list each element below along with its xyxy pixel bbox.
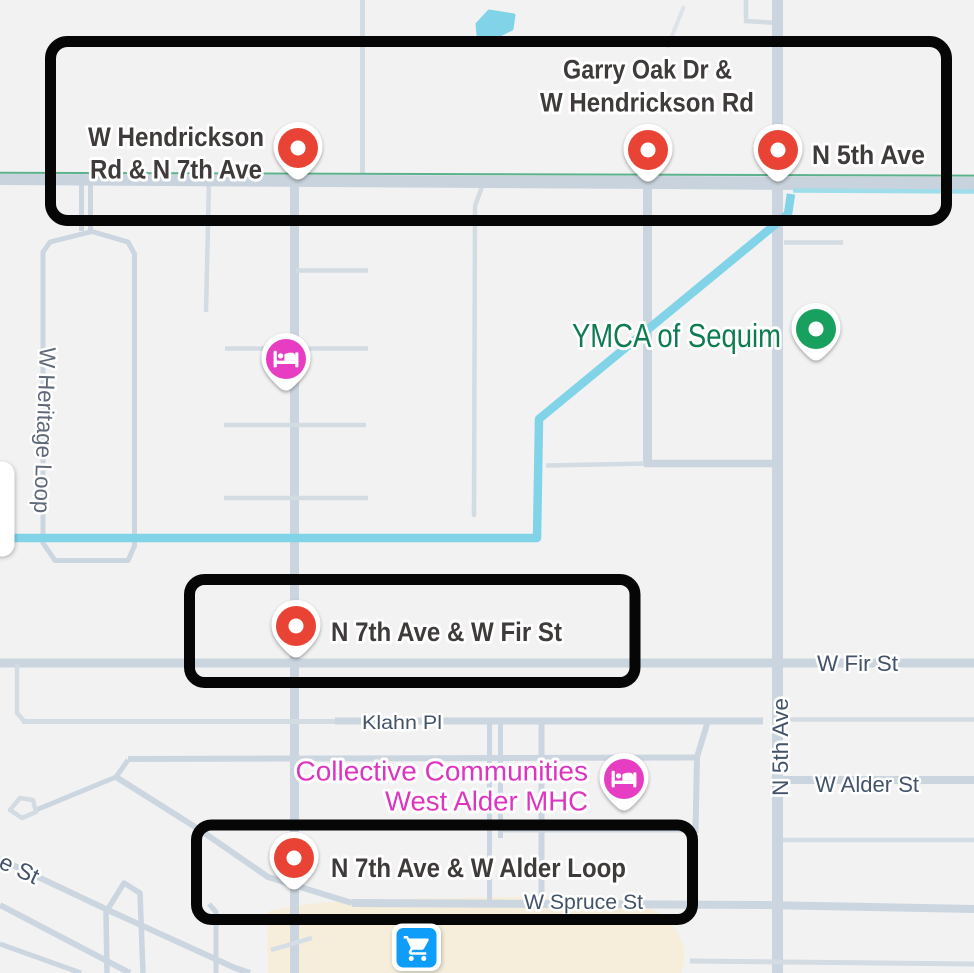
svg-text:West Alder MHC: West Alder MHC [385,786,588,817]
svg-text:W Fir St: W Fir St [817,651,898,676]
svg-text:W Alder St: W Alder St [815,772,919,797]
svg-text:W Hendrickson: W Hendrickson [88,122,264,152]
svg-text:W Hendrickson Rd: W Hendrickson Rd [540,88,754,118]
svg-text:Klahn Pl: Klahn Pl [362,712,442,734]
svg-text:N 5th Ave: N 5th Ave [768,698,793,796]
svg-text:YMCA of Sequim: YMCA of Sequim [572,317,781,354]
svg-text:W Spruce St: W Spruce St [524,891,643,914]
svg-text:N 7th Ave & W Fir St: N 7th Ave & W Fir St [331,617,562,647]
svg-text:N 7th Ave & W Alder Loop: N 7th Ave & W Alder Loop [331,853,626,883]
svg-text:Garry Oak Dr &: Garry Oak Dr & [563,55,732,85]
svg-text:N 5th Ave: N 5th Ave [812,140,925,170]
svg-text:Rd & N 7th Ave: Rd & N 7th Ave [90,155,262,185]
svg-text:Collective Communities: Collective Communities [296,756,589,787]
